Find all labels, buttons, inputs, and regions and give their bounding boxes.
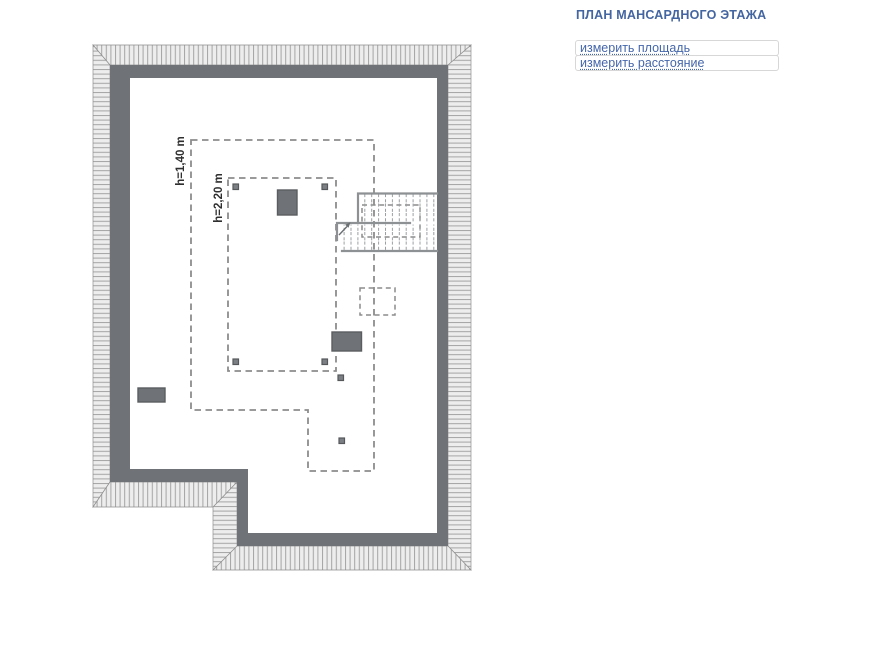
roof-eave-left <box>93 45 110 507</box>
roof-eave-top <box>93 45 471 65</box>
chimney-left <box>138 388 165 402</box>
stair-treads-lower-flight <box>344 225 437 251</box>
measure-area-button[interactable]: измерить площадь <box>575 40 779 56</box>
roof-eave-right <box>448 45 471 570</box>
chimney-top <box>278 190 298 215</box>
roof-eave-bottom <box>213 546 471 570</box>
floor-plan-canvas[interactable]: h=1,40 m h=2,20 m <box>0 0 520 620</box>
roof-eave-step-horizontal <box>93 482 237 507</box>
post <box>338 375 344 381</box>
height-label-140: h=1,40 m <box>175 136 187 186</box>
plan-viewer-page: h=1,40 m h=2,20 m ПЛАН МАНСАРДНОГО ЭТАЖА… <box>0 0 895 656</box>
page-title: ПЛАН МАНСАРДНОГО ЭТАЖА <box>576 8 781 22</box>
post <box>322 184 328 190</box>
measure-distance-label: измерить расстояние <box>580 56 704 70</box>
measure-distance-button[interactable]: измерить расстояние <box>575 55 779 71</box>
post <box>322 359 328 365</box>
post <box>233 184 239 190</box>
post <box>339 438 345 444</box>
height-label-220: h=2,20 m <box>213 173 225 223</box>
measure-area-label: измерить площадь <box>580 41 690 55</box>
chimney-right <box>332 332 362 351</box>
post <box>233 359 239 365</box>
side-panel: ПЛАН МАНСАРДНОГО ЭТАЖА измерить площадь … <box>575 8 781 71</box>
stair-treads-upper-flight <box>361 195 436 223</box>
